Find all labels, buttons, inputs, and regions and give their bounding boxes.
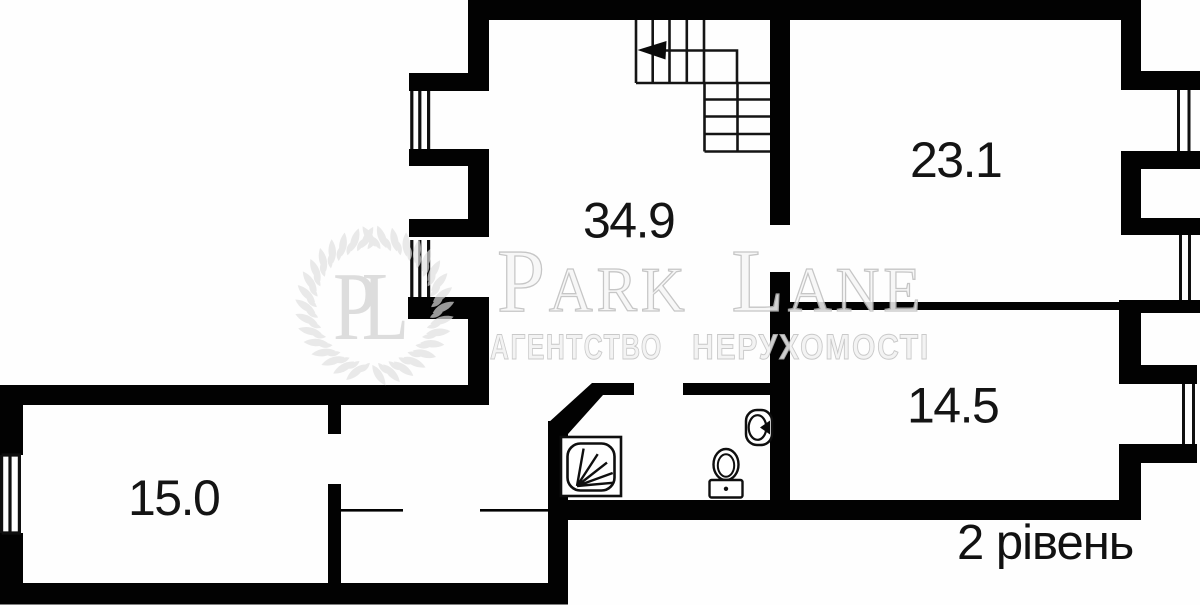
svg-text:2 рівень: 2 рівень [957, 516, 1133, 570]
svg-text:15.0: 15.0 [128, 470, 219, 526]
svg-text:АГЕНТСТВО: АГЕНТСТВО [490, 327, 663, 367]
svg-text:23.1: 23.1 [910, 132, 1001, 188]
svg-text:L: L [362, 253, 409, 360]
svg-text:Park Lane: Park Lane [497, 231, 924, 331]
svg-text:НЕРУХОМОСТІ: НЕРУХОМОСТІ [692, 327, 930, 367]
svg-text:14.5: 14.5 [907, 378, 998, 434]
